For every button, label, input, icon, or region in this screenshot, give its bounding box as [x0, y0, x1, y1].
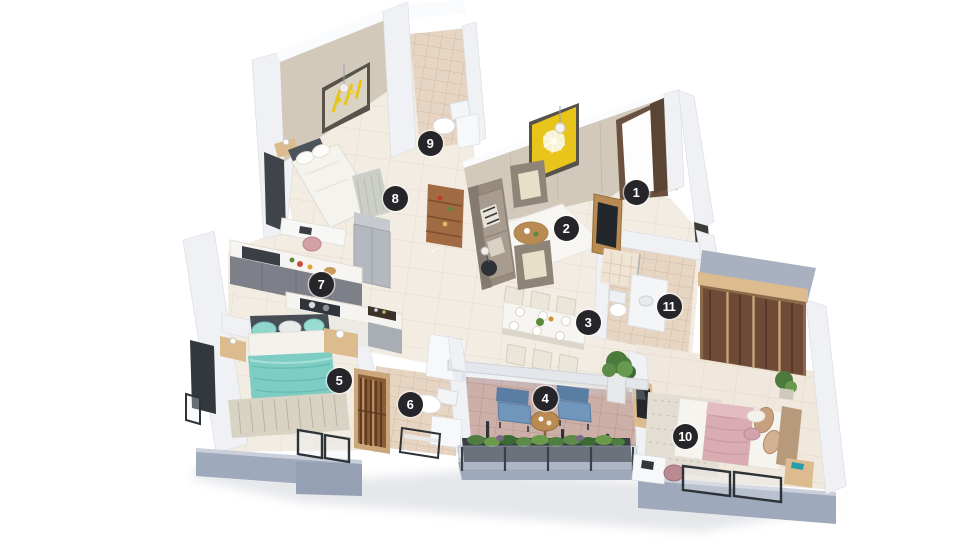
- room-marker-6: 6: [398, 392, 423, 417]
- room-marker-2: 2: [554, 216, 579, 241]
- room-marker-8: 8: [383, 186, 408, 211]
- room-markers: 1234567891011: [0, 0, 960, 540]
- floor-plan-figure: 1234567891011: [0, 0, 960, 540]
- room-marker-10: 10: [673, 424, 698, 449]
- room-marker-9: 9: [418, 131, 443, 156]
- room-marker-7: 7: [309, 272, 334, 297]
- room-marker-11: 11: [657, 294, 682, 319]
- room-marker-3: 3: [576, 310, 601, 335]
- room-marker-5: 5: [327, 368, 352, 393]
- room-marker-1: 1: [624, 180, 649, 205]
- room-marker-4: 4: [533, 386, 558, 411]
